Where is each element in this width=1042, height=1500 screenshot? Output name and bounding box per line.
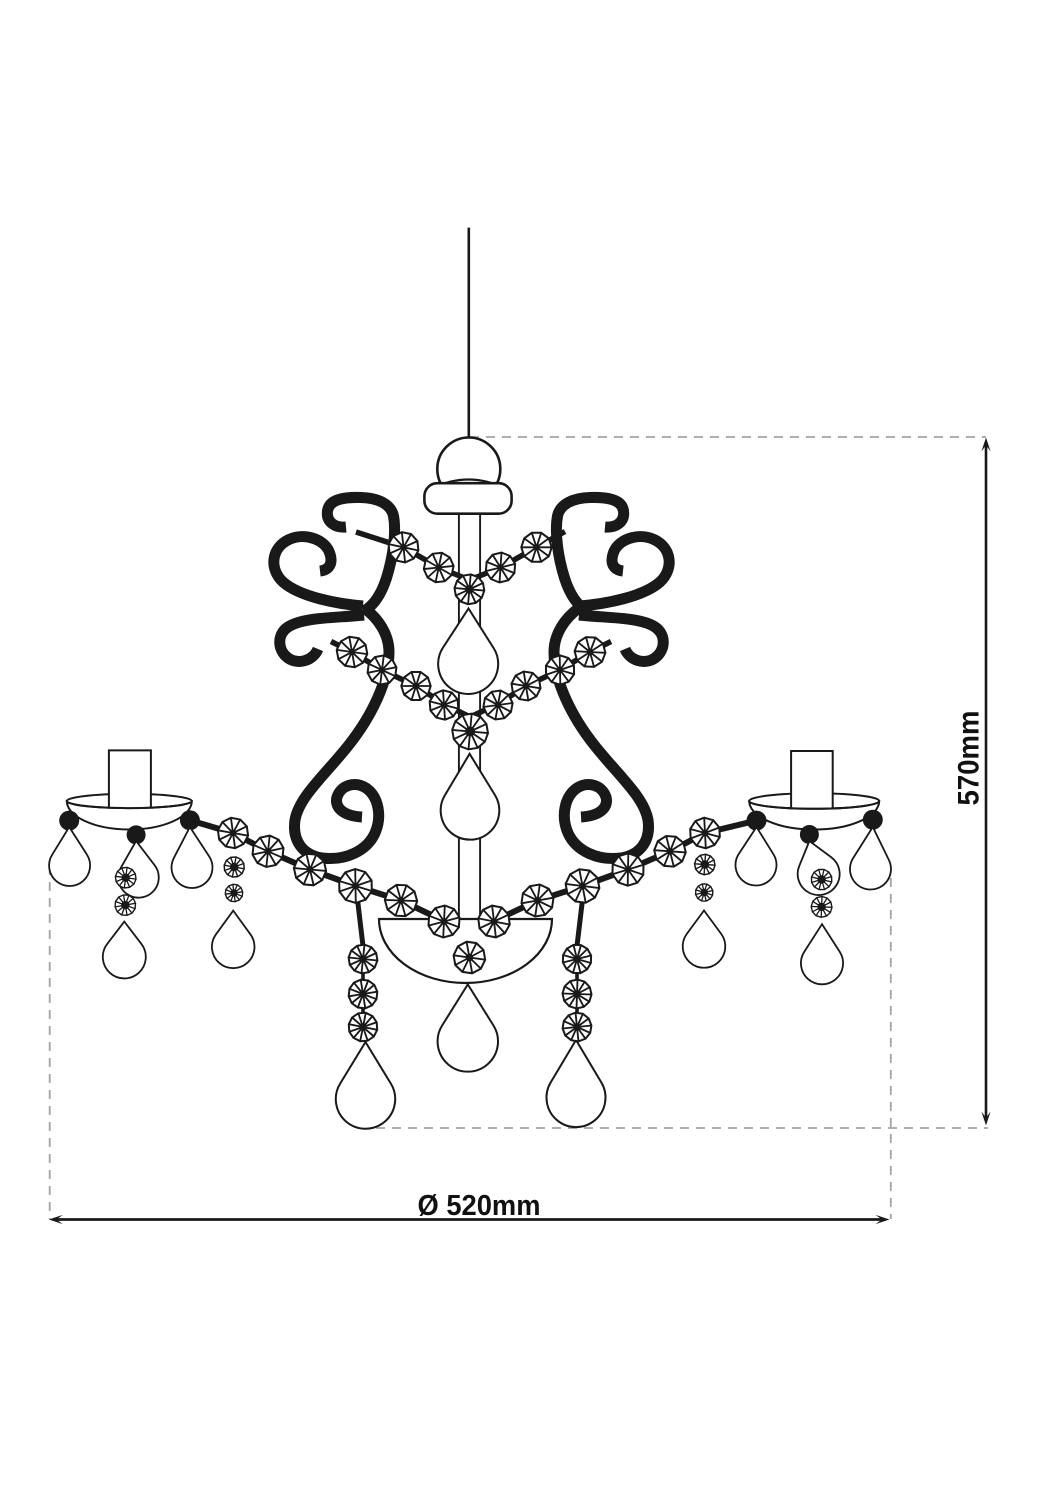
svg-text:Ø 520mm: Ø 520mm bbox=[418, 1190, 541, 1222]
svg-text:570mm: 570mm bbox=[953, 711, 986, 806]
